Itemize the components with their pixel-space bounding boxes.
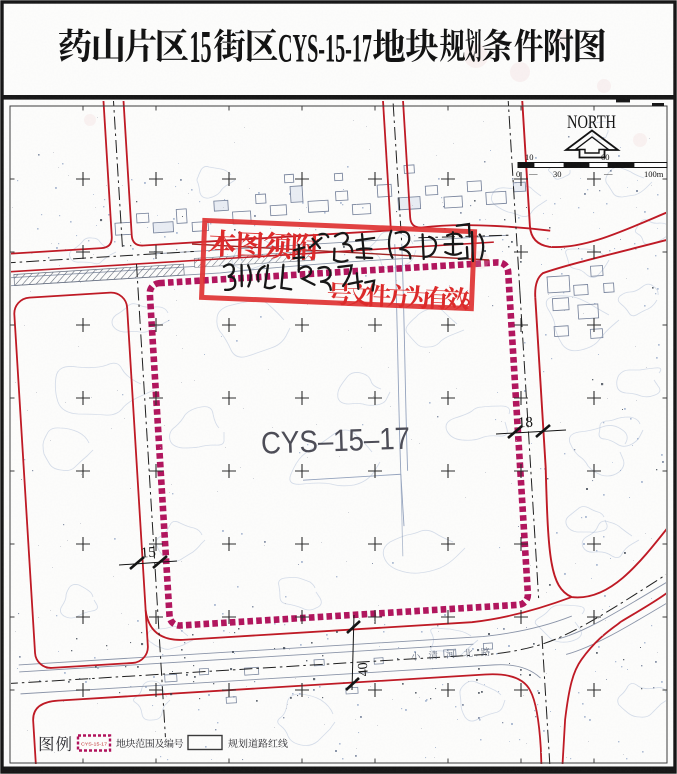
svg-text:CYS-15-17: CYS-15-17 — [81, 742, 107, 747]
